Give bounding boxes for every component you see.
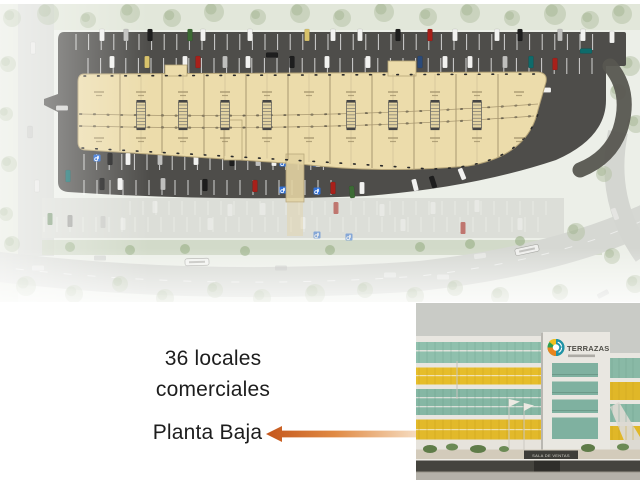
handicap-icon	[346, 234, 353, 241]
caption-line2: comerciales	[156, 378, 270, 401]
entrance-door	[534, 461, 560, 472]
photo-right-wing	[610, 353, 640, 450]
sales-sign-text: SALA DE VENTAS	[532, 453, 570, 458]
pointer-arrow	[266, 425, 418, 443]
pedestrian-walkway-faded	[287, 202, 303, 236]
pavement	[416, 472, 640, 480]
handicap-icon	[314, 232, 321, 239]
site-plan-rendering	[0, 4, 640, 302]
handicap-icon	[280, 187, 287, 194]
caption-line1: 36 locales	[165, 347, 262, 370]
arrow-shape	[266, 426, 418, 442]
building-photo: TERRAZAS SALA DE VENTAS	[416, 303, 640, 480]
presentation-slide: 36 locales comerciales Planta Baja	[0, 0, 640, 480]
logo-text: TERRAZAS	[567, 344, 609, 353]
stair-lobby-north-1	[165, 65, 187, 76]
logo-subtext-bar	[568, 355, 595, 358]
handicap-icon	[314, 188, 321, 195]
photo-tower: TERRAZAS	[541, 332, 610, 450]
bottom-fade	[0, 248, 640, 302]
caption-locales: 36 locales comerciales	[60, 343, 366, 405]
photo-ground-floor: SALA DE VENTAS	[416, 450, 640, 480]
glazing	[416, 461, 640, 472]
